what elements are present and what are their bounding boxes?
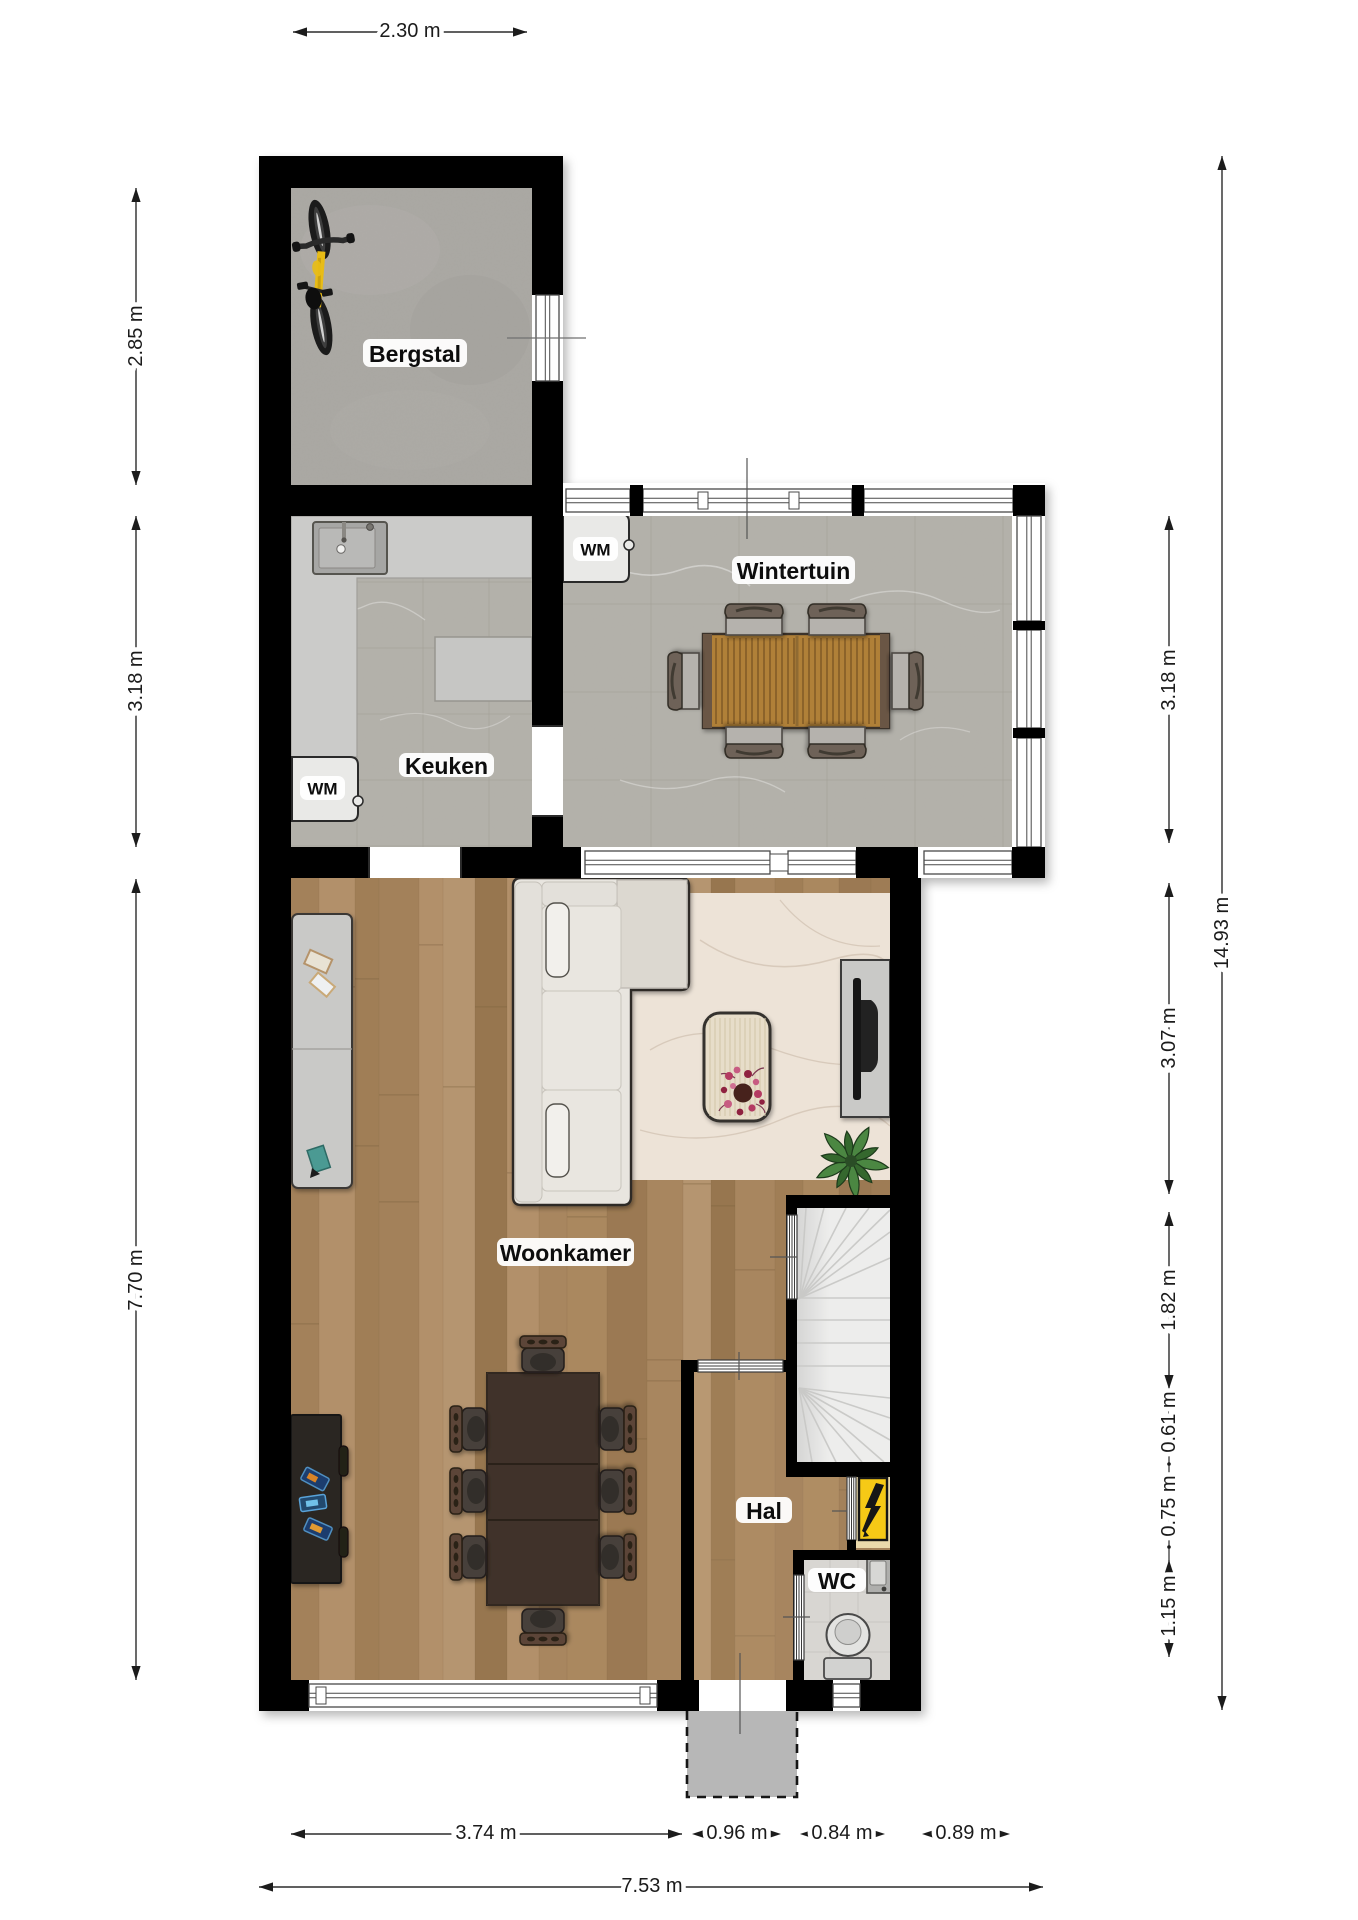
svg-text:0.75 m: 0.75 m [1158,1475,1180,1536]
svg-text:2.30 m: 2.30 m [379,20,440,42]
svg-text:WM: WM [580,541,610,560]
svg-text:3.18 m: 3.18 m [1158,649,1180,710]
svg-text:WM: WM [307,780,337,799]
svg-text:WC: WC [818,1568,856,1594]
svg-text:0.89 m: 0.89 m [935,1822,996,1844]
svg-text:0.96 m: 0.96 m [706,1822,767,1844]
svg-text:7.53 m: 7.53 m [621,1875,682,1897]
svg-text:14.93 m: 14.93 m [1211,897,1233,969]
svg-text:0.84 m: 0.84 m [811,1822,872,1844]
svg-text:Bergstal: Bergstal [369,341,461,367]
svg-text:0.61 m: 0.61 m [1158,1391,1180,1452]
svg-text:Wintertuin: Wintertuin [737,558,851,584]
svg-text:1.82 m: 1.82 m [1158,1269,1180,1330]
svg-text:Keuken: Keuken [405,753,488,779]
svg-text:3.07 m: 3.07 m [1158,1007,1180,1068]
svg-text:7.70 m: 7.70 m [125,1249,147,1310]
svg-text:3.74 m: 3.74 m [455,1822,516,1844]
svg-text:2.85 m: 2.85 m [125,305,147,366]
svg-text:Hal: Hal [746,1498,782,1524]
svg-text:3.18 m: 3.18 m [125,650,147,711]
svg-text:1.15 m: 1.15 m [1158,1575,1180,1636]
svg-text:Woonkamer: Woonkamer [500,1240,631,1266]
